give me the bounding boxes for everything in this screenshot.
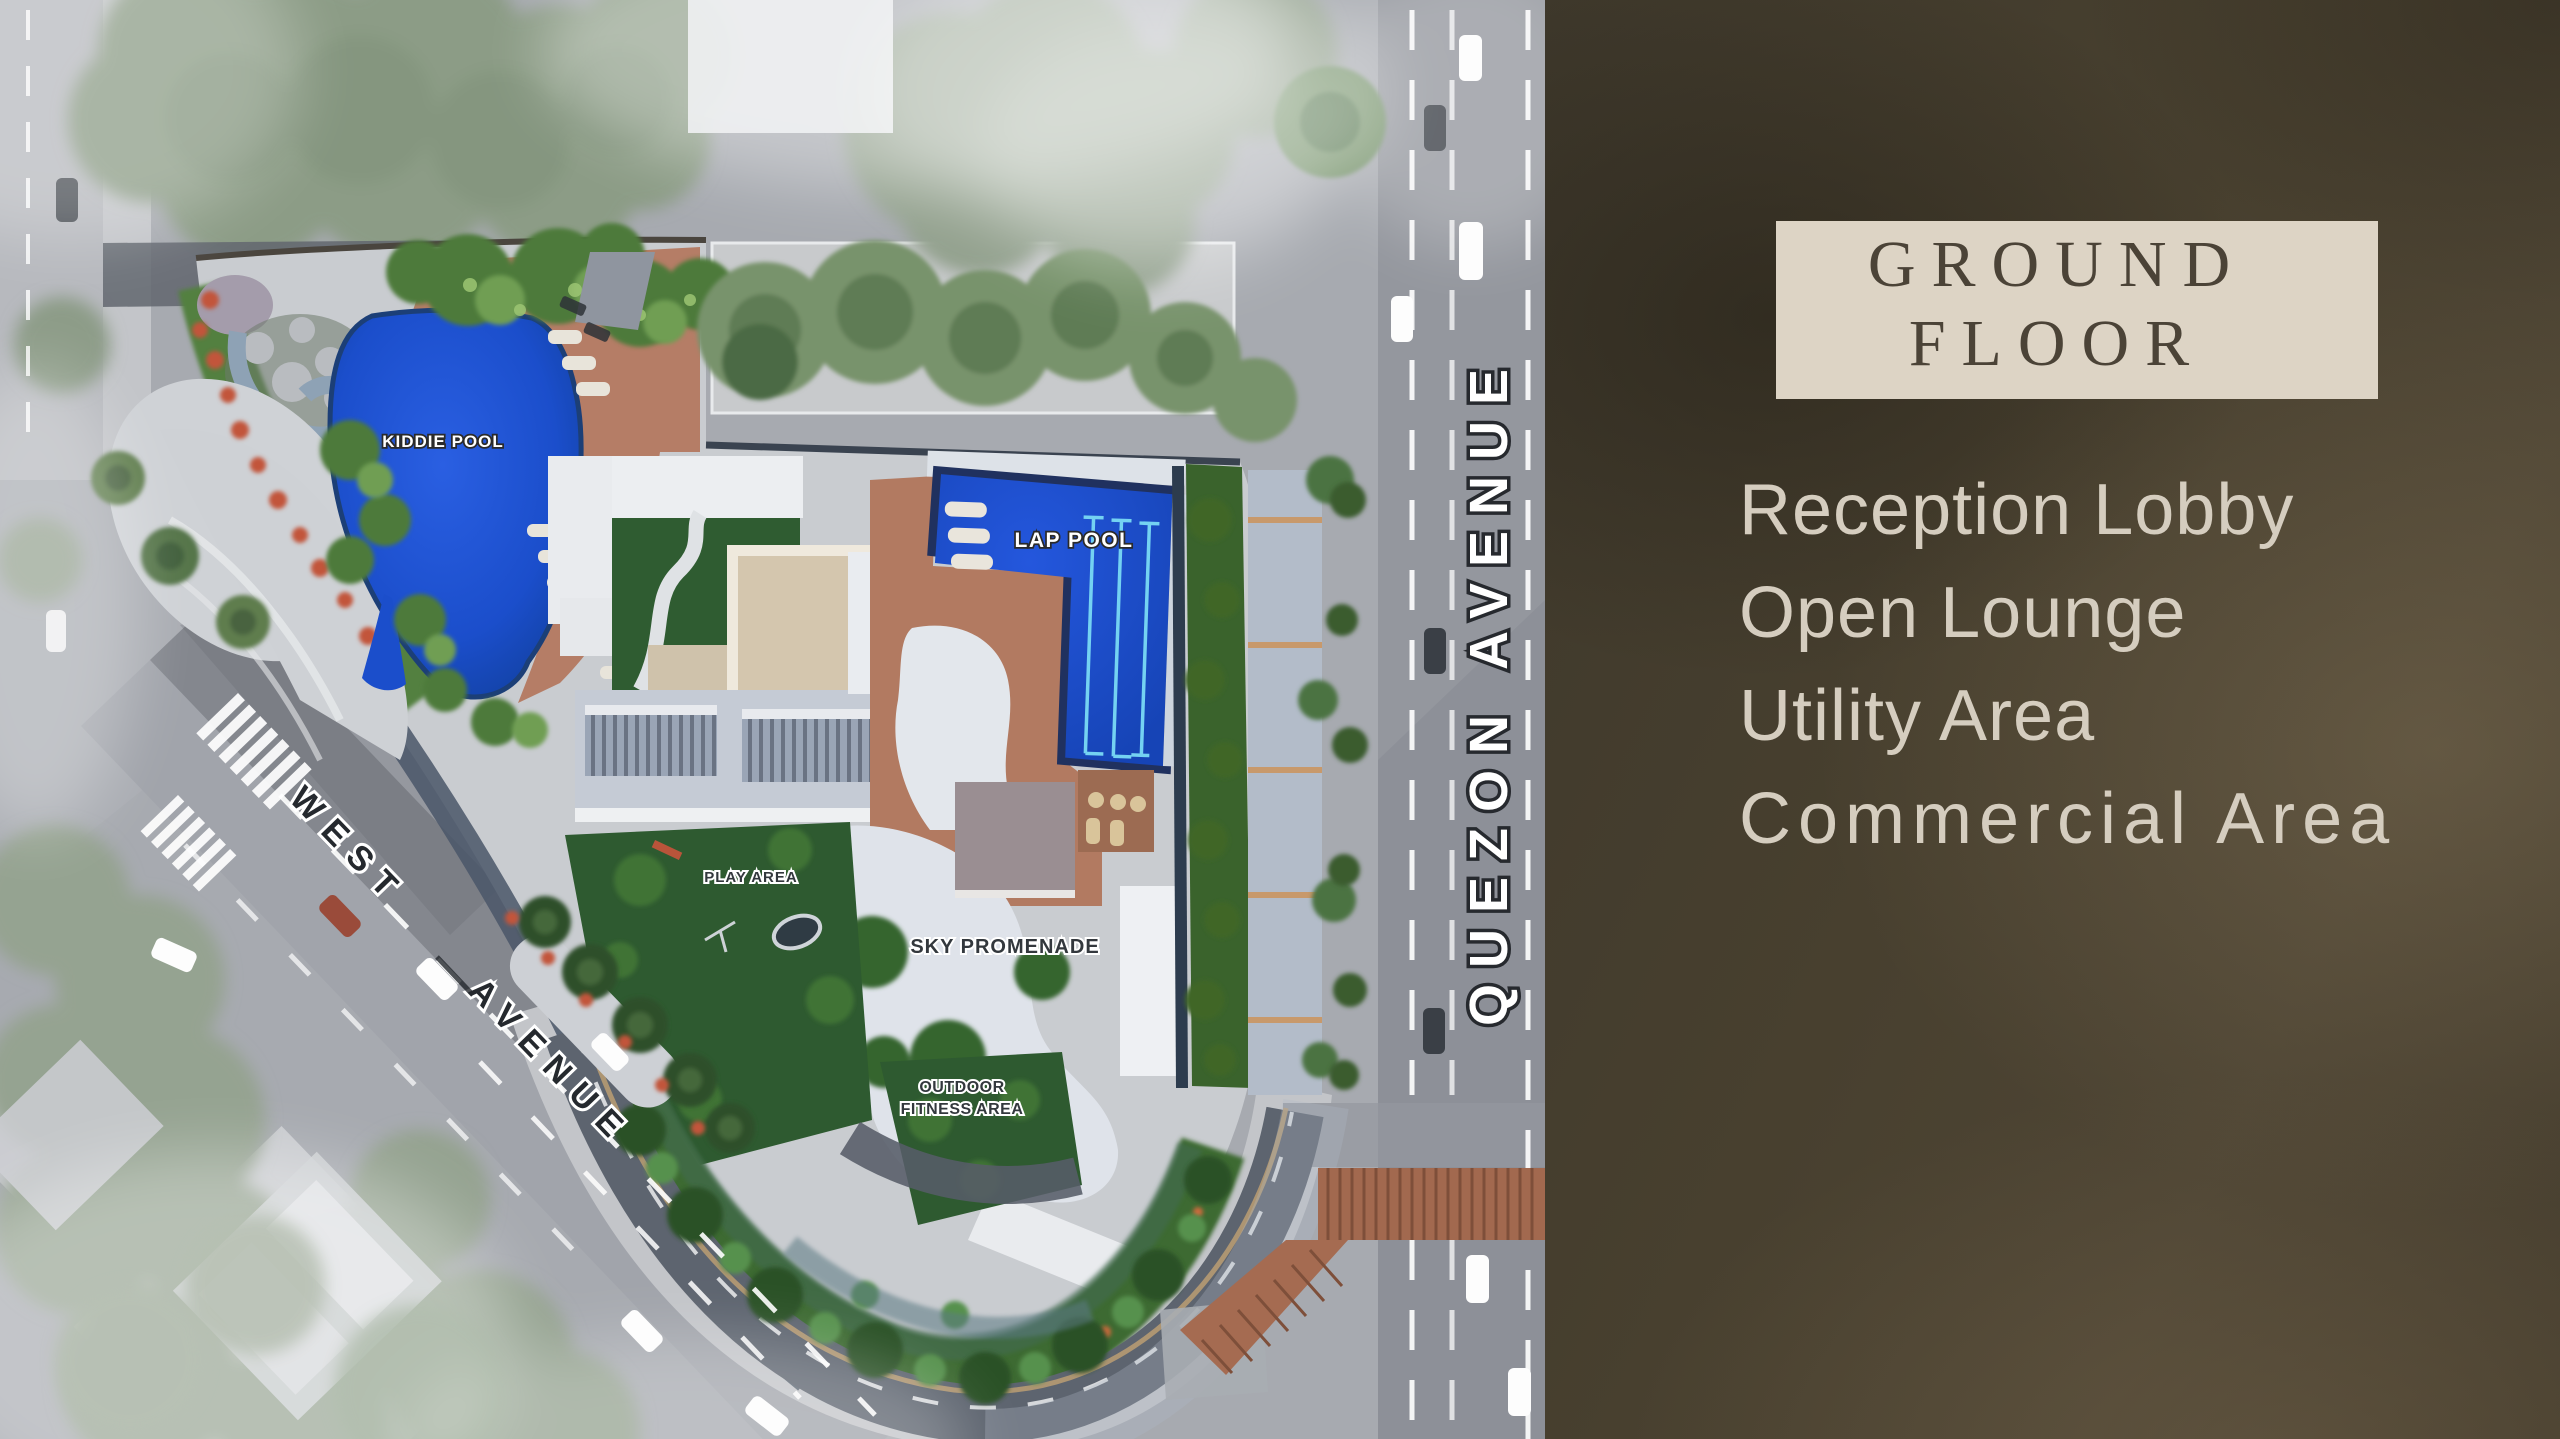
svg-text:OUTDOOR: OUTDOOR bbox=[919, 1079, 1004, 1096]
svg-text:QUEZON AVENUE: QUEZON AVENUE bbox=[1459, 353, 1519, 1026]
svg-text:FITNESS AREA: FITNESS AREA bbox=[901, 1101, 1024, 1118]
svg-text:LAP POOL: LAP POOL bbox=[1015, 529, 1134, 552]
svg-text:SKY PROMENADE: SKY PROMENADE bbox=[910, 936, 1099, 958]
svg-text:PLAY AREA: PLAY AREA bbox=[704, 869, 797, 886]
svg-text:KIDDIE POOL: KIDDIE POOL bbox=[382, 432, 504, 451]
